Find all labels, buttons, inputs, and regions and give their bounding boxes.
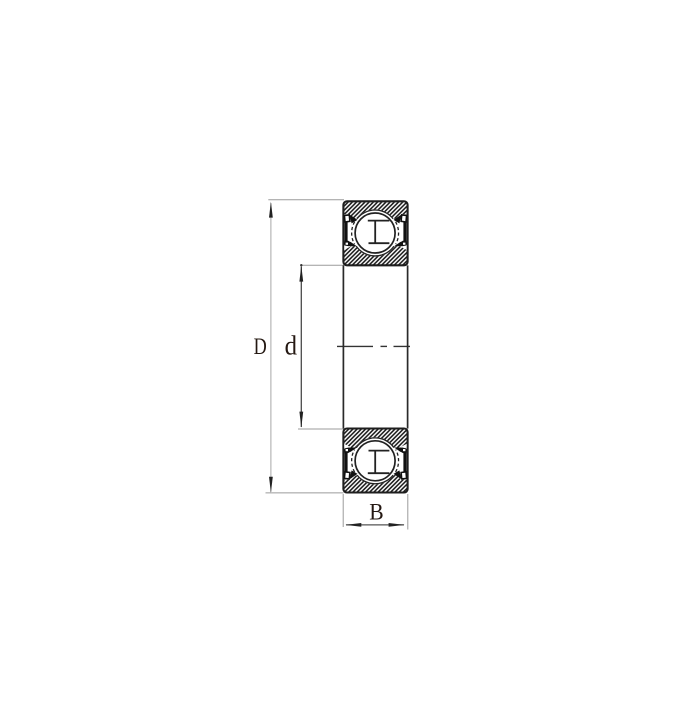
svg-text:D: D (254, 335, 267, 359)
svg-text:B: B (369, 499, 383, 525)
svg-text:d: d (285, 331, 297, 361)
